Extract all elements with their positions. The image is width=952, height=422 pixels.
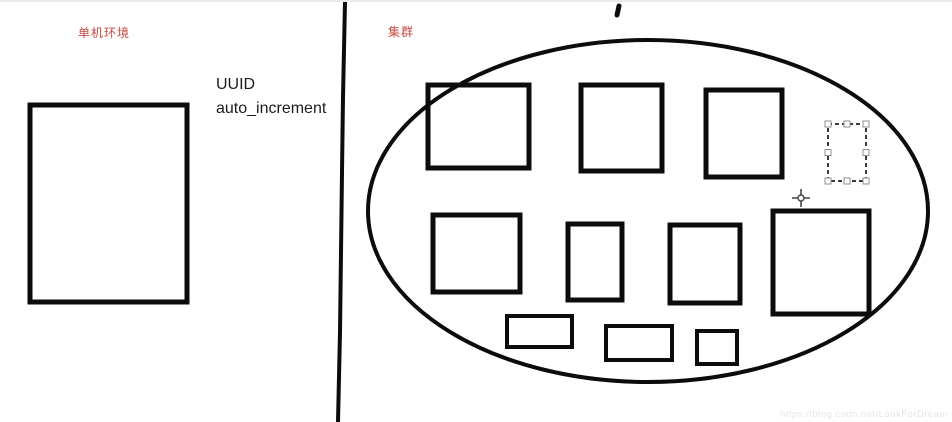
- selection-handle[interactable]: [863, 178, 869, 184]
- standalone-db-rect[interactable]: [30, 105, 187, 302]
- label-uuid: UUID: [216, 75, 255, 94]
- cluster-node-rect-5[interactable]: [568, 224, 622, 300]
- cluster-node-rect-10[interactable]: [697, 331, 737, 364]
- cluster-node-rect-3[interactable]: [706, 90, 782, 177]
- cluster-node-rect-1[interactable]: [428, 85, 529, 168]
- selection-handle[interactable]: [825, 121, 831, 127]
- label-standalone-env: 单机环境: [78, 26, 130, 40]
- selection-handle[interactable]: [825, 178, 831, 184]
- crosshair-cursor-center: [798, 195, 804, 201]
- selection-handle[interactable]: [844, 121, 850, 127]
- selection-handle[interactable]: [825, 150, 831, 156]
- drawing-canvas[interactable]: 单机环境 集群 UUID auto_increment https://blog…: [0, 0, 952, 422]
- cluster-node-rect-6[interactable]: [670, 225, 740, 303]
- cluster-node-rect-8[interactable]: [507, 316, 572, 347]
- label-auto-increment: auto_increment: [216, 99, 326, 118]
- pen-stroke-mark: [617, 6, 619, 15]
- selection-handle[interactable]: [863, 121, 869, 127]
- shapes-layer: [0, 2, 952, 422]
- cluster-node-rect-4[interactable]: [433, 215, 520, 292]
- selection-handle[interactable]: [863, 150, 869, 156]
- selected-rect[interactable]: [828, 124, 866, 181]
- cluster-node-rect-2[interactable]: [581, 85, 662, 171]
- section-divider-line[interactable]: [338, 2, 345, 422]
- cluster-node-rect-7[interactable]: [773, 211, 869, 314]
- label-cluster: 集群: [388, 25, 414, 39]
- cluster-node-rect-9[interactable]: [606, 326, 672, 360]
- selection-handle[interactable]: [844, 178, 850, 184]
- watermark-url: https://blog.csdn.net/LookForDream: [780, 409, 948, 420]
